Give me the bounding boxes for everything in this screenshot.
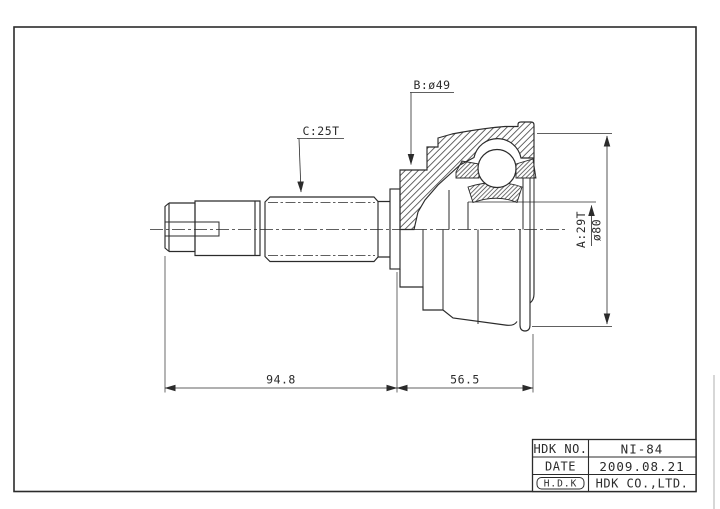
technical-drawing-svg: C:25T B:ø49 A:29T ø80 94.8 56.5 HDK <box>0 0 720 509</box>
dim-label-b: B:ø49 <box>413 78 450 92</box>
titleblock-date-value: 2009.08.21 <box>599 459 684 474</box>
dim-label-a: A:29T <box>574 211 588 248</box>
dim-label-outer-dia: ø80 <box>590 219 604 241</box>
titleblock-company: HDK CO.,LTD. <box>596 477 689 491</box>
titleblock-no-label: HDK NO. <box>533 442 587 456</box>
title-block: HDK NO. NI-84 DATE 2009.08.21 H.D.K HDK … <box>533 440 697 492</box>
paper <box>0 0 720 509</box>
dim-label-c: C:25T <box>302 124 339 138</box>
bearing-ball <box>478 150 516 188</box>
titleblock-no-value: NI-84 <box>621 442 664 457</box>
hdk-logo-text: H.D.K <box>544 479 578 490</box>
dim-label-shaft-length: 94.8 <box>266 373 296 387</box>
drawing-sheet: C:25T B:ø49 A:29T ø80 94.8 56.5 HDK <box>0 0 720 509</box>
dim-label-joint-length: 56.5 <box>450 373 480 387</box>
titleblock-date-label: DATE <box>545 460 576 474</box>
